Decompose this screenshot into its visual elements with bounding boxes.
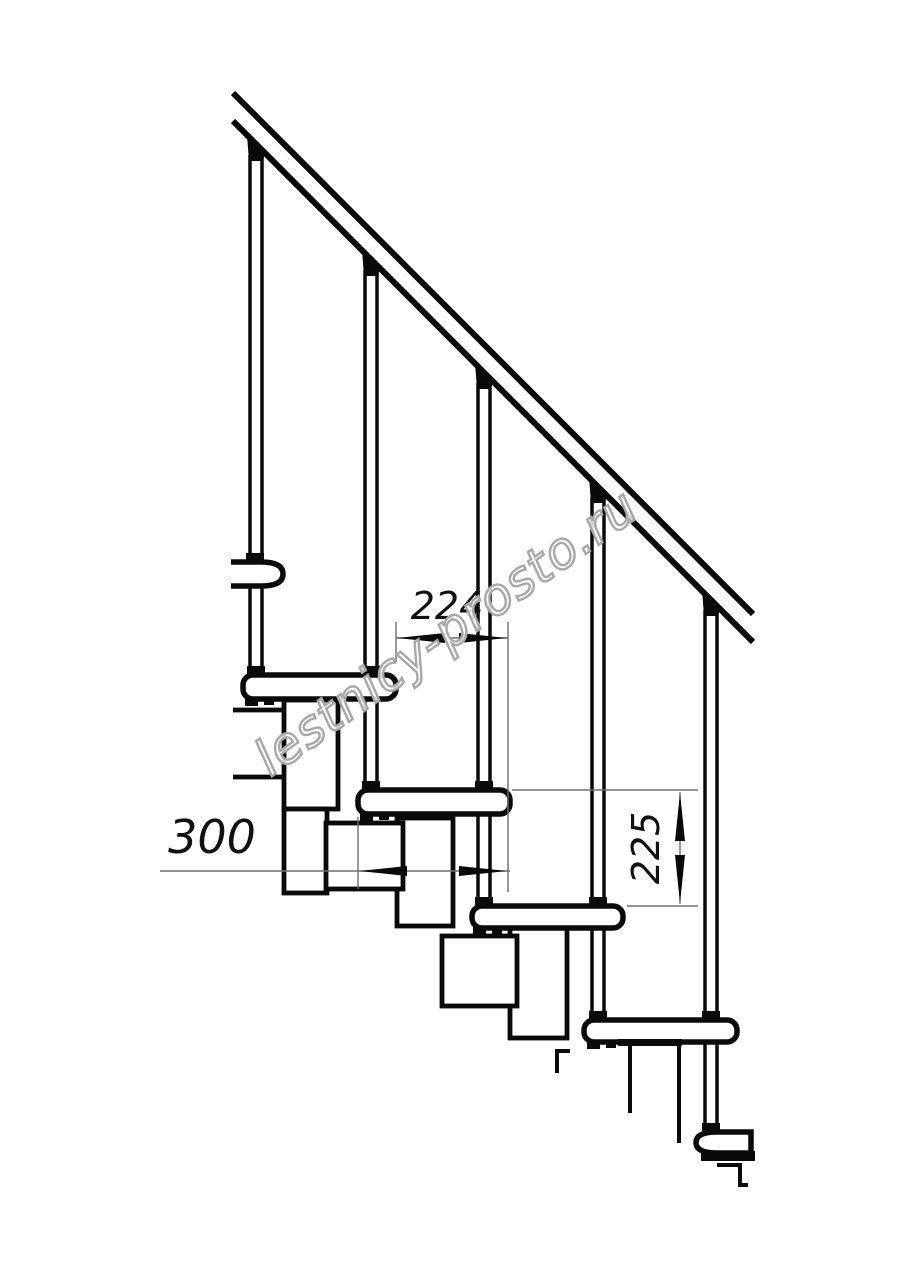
tread-0-partial xyxy=(231,562,283,586)
tread-4-bracket-b xyxy=(606,1040,616,1048)
dim-225-arrow-bottom xyxy=(675,855,685,903)
handrail-top-line xyxy=(233,93,753,614)
dim-label-tread-depth: 300 xyxy=(168,810,256,864)
baluster-5-collar-tread-5 xyxy=(702,1123,720,1133)
dim-300-arrow-right xyxy=(459,866,507,876)
baluster-4-collar-tread-3 xyxy=(589,897,607,907)
tread-3-bracket-a xyxy=(473,926,486,935)
tread-5-mount-bar xyxy=(701,1151,755,1161)
module-box-2 xyxy=(442,936,517,1006)
watermark: lestnicy-prosto.ru xyxy=(244,477,648,787)
baluster-5 xyxy=(705,610,717,1130)
tread-4-mount-bar xyxy=(618,1039,682,1046)
tread-3 xyxy=(472,906,623,928)
tread-1-bracket-b xyxy=(264,697,274,705)
module-step-tick xyxy=(557,1051,570,1073)
tread-2 xyxy=(358,790,510,814)
tread-2-bracket-a xyxy=(360,812,373,821)
baluster-4 xyxy=(592,497,604,1018)
dim-label-riser-height: 225 xyxy=(624,812,668,885)
floor-anchor-step xyxy=(717,1165,748,1185)
tread-1-bracket-a xyxy=(245,697,258,706)
tread-2-bracket-b xyxy=(379,812,389,820)
module-column-1b xyxy=(284,809,327,893)
baluster-1-collar-tread-0 xyxy=(246,553,264,563)
staircase-drawing-canvas: 224 300 225 lestnicy-prosto.ru xyxy=(0,0,914,1280)
baluster-2-collar-tread-2 xyxy=(362,781,380,791)
baluster-1 xyxy=(250,155,262,674)
baluster-3-collar-tread-3 xyxy=(475,897,493,907)
baluster-4-collar-tread-4 xyxy=(589,1011,607,1021)
module-box-1 xyxy=(326,823,403,889)
dim-225-arrow-top xyxy=(675,793,685,841)
handrail xyxy=(233,93,753,642)
baluster-1-collar-tread-1 xyxy=(247,666,265,676)
tread-5-bottom xyxy=(696,1132,751,1153)
tread-3-bracket-b xyxy=(492,926,502,934)
baluster-3-collar-tread-2 xyxy=(475,781,493,791)
baluster-5-collar-tread-4 xyxy=(702,1011,720,1021)
tread-4 xyxy=(584,1020,737,1042)
watermark-text: lestnicy-prosto.ru xyxy=(244,477,648,787)
staircase-side-view-drawing: 224 300 225 lestnicy-prosto.ru xyxy=(0,0,914,1280)
tread-4-bracket-a xyxy=(587,1040,600,1049)
